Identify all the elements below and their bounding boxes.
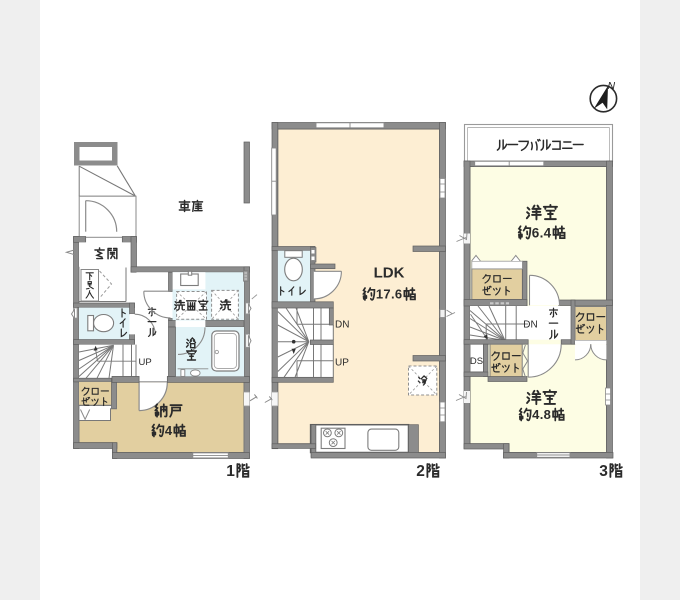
svg-text:2: 2 [416,463,425,480]
svg-text:UP: UP [139,357,152,368]
svg-text:DS: DS [470,356,483,367]
svg-text:DN: DN [335,320,349,331]
svg-text:LDK: LDK [374,265,405,282]
svg-text:6: 6 [395,287,402,302]
svg-text:4: 4 [544,225,552,240]
svg-text:N: N [608,80,616,92]
svg-text:8: 8 [544,407,551,422]
svg-text:3: 3 [599,463,608,480]
svg-text:DN: DN [523,320,537,331]
svg-text:UP: UP [335,358,349,369]
svg-text:7: 7 [383,287,390,302]
svg-text:4: 4 [165,423,173,438]
svg-text:1: 1 [376,287,383,302]
svg-text:1: 1 [226,463,235,480]
svg-text:6: 6 [532,225,540,240]
